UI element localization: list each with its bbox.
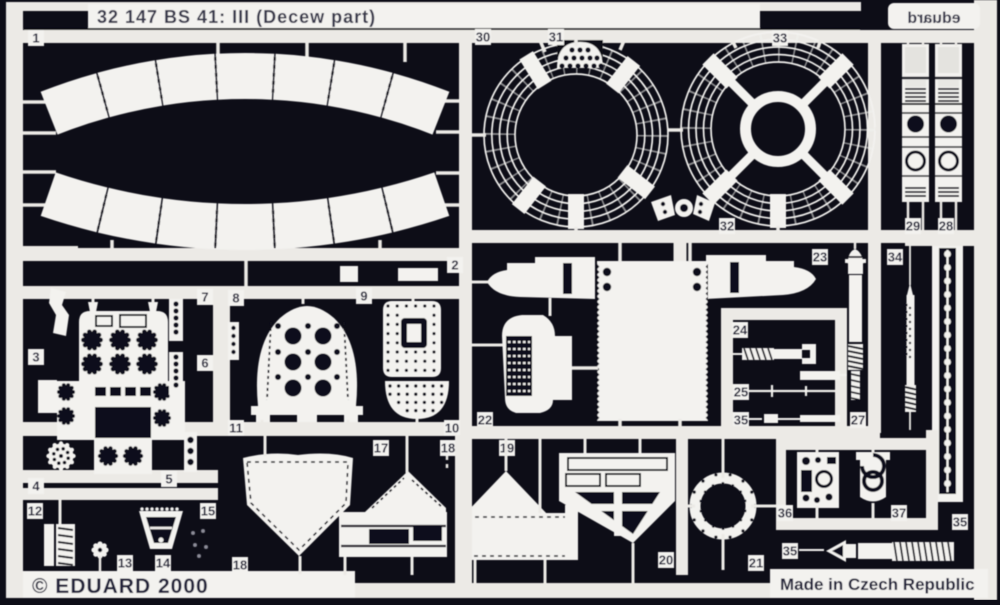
svg-text:18: 18: [441, 441, 455, 456]
svg-text:27: 27: [851, 413, 865, 428]
svg-text:8: 8: [232, 291, 239, 306]
svg-text:33: 33: [773, 31, 787, 46]
svg-text:3: 3: [32, 350, 39, 365]
svg-text:© EDUARD 2000: © EDUARD 2000: [32, 575, 209, 598]
svg-text:Made in Czech Republic: Made in Czech Republic: [780, 575, 975, 594]
svg-text:31: 31: [549, 30, 563, 45]
svg-text:13: 13: [118, 556, 132, 571]
svg-text:32 147 BS 41: III (Decew par: 32 147 BS 41: III (Decew part): [97, 7, 376, 27]
svg-text:29: 29: [906, 219, 920, 234]
svg-text:eduard: eduard: [907, 10, 960, 27]
svg-text:7: 7: [201, 290, 208, 305]
svg-text:14: 14: [156, 556, 171, 571]
svg-text:2: 2: [451, 258, 458, 273]
svg-text:18: 18: [233, 558, 247, 573]
svg-text:35: 35: [783, 544, 797, 559]
svg-text:4: 4: [32, 479, 40, 494]
svg-text:28: 28: [939, 219, 953, 234]
svg-text:12: 12: [28, 504, 42, 519]
svg-text:9: 9: [360, 289, 367, 304]
svg-text:25: 25: [734, 385, 748, 400]
svg-text:22: 22: [478, 413, 492, 428]
svg-text:32: 32: [720, 219, 734, 234]
svg-text:35: 35: [734, 413, 748, 428]
svg-text:20: 20: [659, 553, 673, 568]
svg-text:23: 23: [813, 250, 827, 265]
svg-text:37: 37: [892, 506, 906, 521]
svg-text:11: 11: [229, 421, 243, 436]
svg-text:36: 36: [778, 506, 792, 521]
svg-text:17: 17: [374, 441, 388, 456]
svg-text:5: 5: [165, 472, 172, 487]
svg-text:35: 35: [953, 515, 967, 530]
svg-text:24: 24: [733, 323, 748, 338]
svg-text:15: 15: [201, 504, 215, 519]
svg-text:34: 34: [888, 250, 903, 265]
svg-text:6: 6: [201, 356, 208, 371]
svg-text:10: 10: [445, 421, 459, 436]
svg-text:1: 1: [32, 31, 39, 46]
svg-text:30: 30: [476, 30, 490, 45]
svg-text:21: 21: [749, 556, 763, 571]
